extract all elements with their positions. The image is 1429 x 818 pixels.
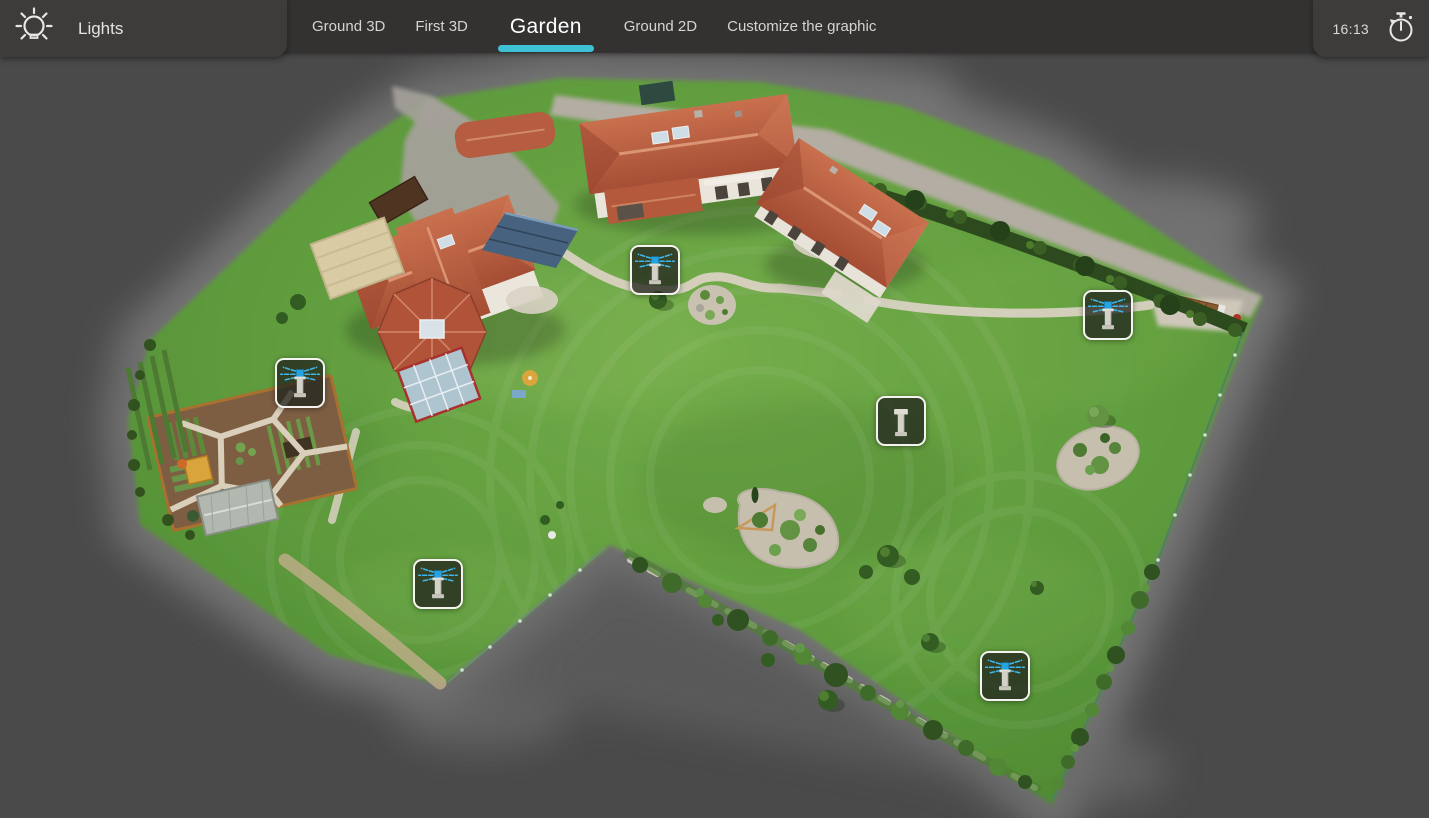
active-tab-underline [415,45,468,52]
ornamental-bed [688,285,736,325]
sprinkler-icon [632,247,678,293]
tab-label: Ground 2D [624,18,697,35]
stopwatch-icon [1383,9,1419,48]
tab-ground-2d[interactable]: Ground 2D [624,0,697,53]
tab-label: First 3D [415,18,468,35]
tab-customize-the-graphic[interactable]: Customize the graphic [727,0,876,53]
sprinkler-icon [982,653,1028,699]
panel-title: Lights [78,19,123,39]
sprinkler-icon [415,561,461,607]
lightbulb-icon [12,4,56,53]
timer-button[interactable] [1383,9,1419,48]
tab-label: Ground 3D [312,18,385,35]
active-tab-underline [498,45,594,52]
sprinkler-5-button[interactable] [413,559,463,609]
tab-garden[interactable]: Garden [498,0,594,53]
active-tab-underline [727,45,876,52]
app-window: Ground 3D First 3D Garden Ground 2D Cust… [0,0,1429,818]
sprinkler-2-button[interactable] [1083,290,1133,340]
clock-time: 16:13 [1332,21,1369,37]
tab-label: Garden [510,15,582,39]
garden-3d-map[interactable] [0,0,1429,818]
active-tab-underline [312,45,385,52]
sprinkler-icon [277,360,323,406]
sprinkler-icon [878,398,924,444]
lights-panel[interactable]: Lights [0,0,287,57]
sprinkler-1-button[interactable] [630,245,680,295]
sprinkler-6-button[interactable] [980,651,1030,701]
tab-label: Customize the graphic [727,18,876,35]
tab-bar: Ground 3D First 3D Garden Ground 2D Cust… [312,0,876,53]
clock-panel: 16:13 [1313,0,1429,57]
sprinkler-icon [1085,292,1131,338]
sprinkler-4-button[interactable] [876,396,926,446]
sprinkler-3-button[interactable] [275,358,325,408]
tab-ground-3d[interactable]: Ground 3D [312,0,385,53]
active-tab-underline [624,45,697,52]
tab-first-3d[interactable]: First 3D [415,0,468,53]
